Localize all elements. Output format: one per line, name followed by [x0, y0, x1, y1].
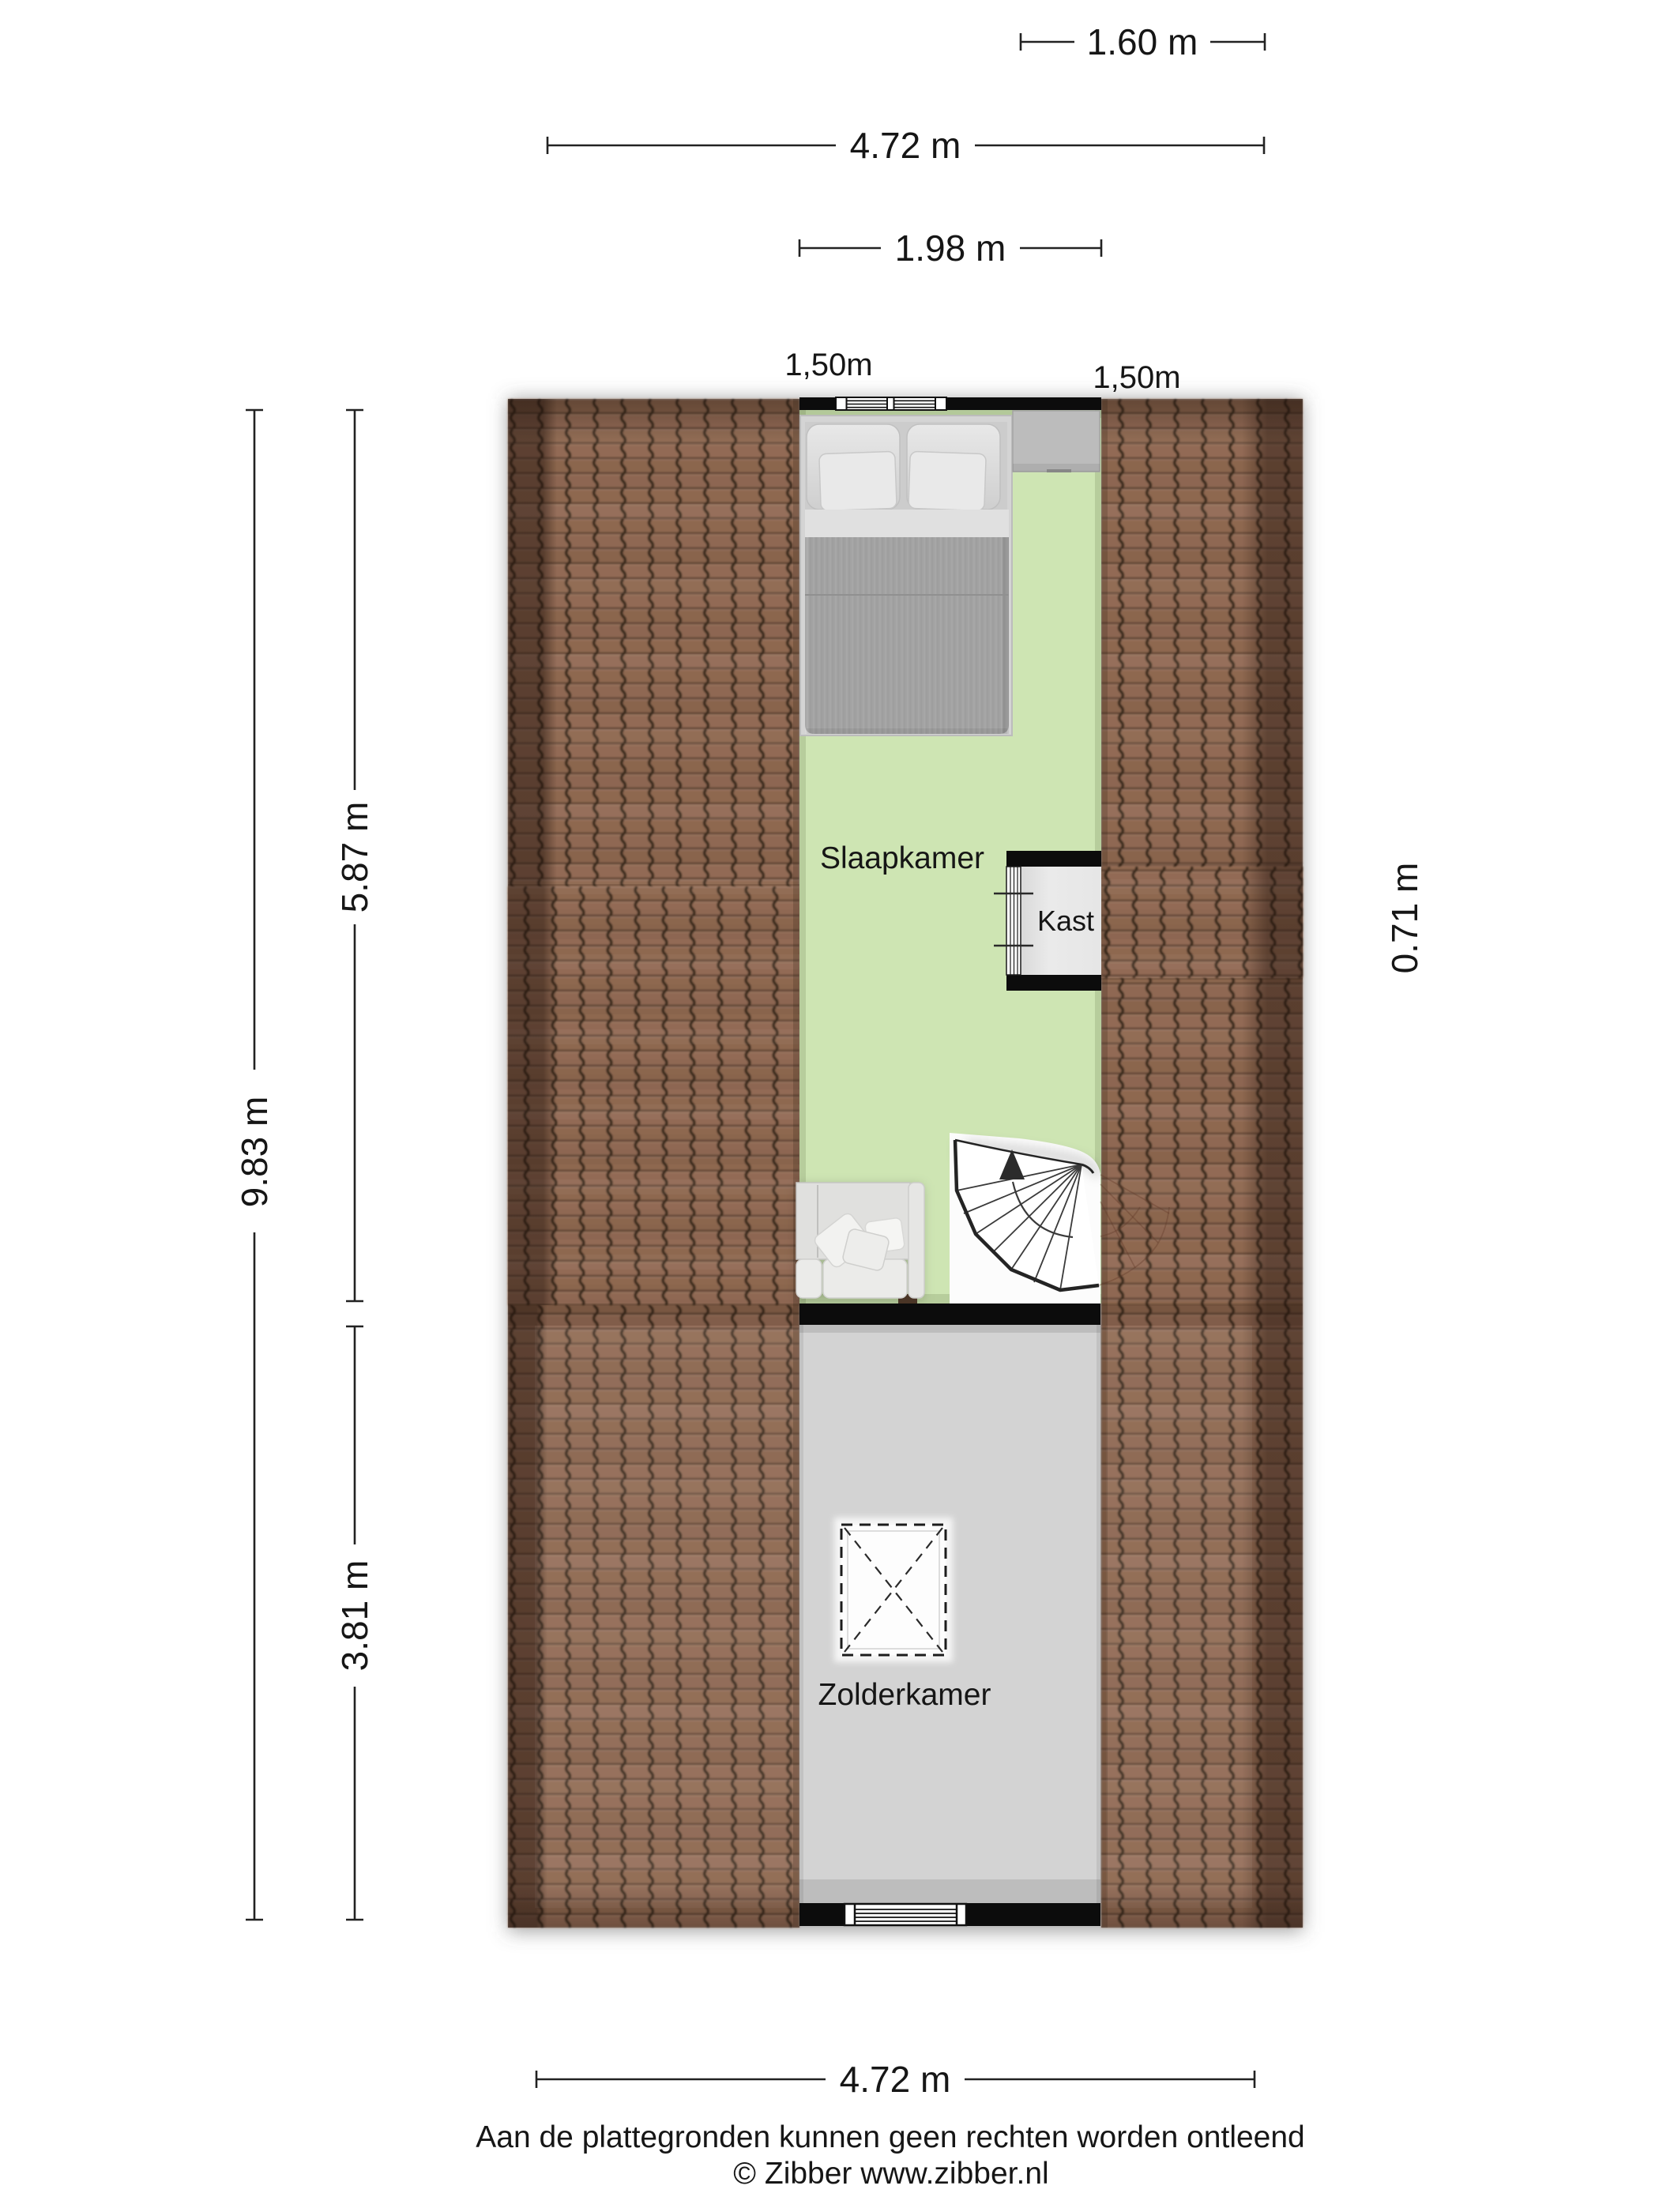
svg-text:Kast: Kast: [1037, 905, 1094, 937]
svg-text:0.71 m: 0.71 m: [1384, 863, 1425, 974]
svg-text:9.83 m: 9.83 m: [234, 1097, 275, 1208]
svg-text:© Zibber www.zibber.nl: © Zibber www.zibber.nl: [733, 2157, 1048, 2191]
svg-text:1.60 m: 1.60 m: [1087, 21, 1198, 62]
svg-text:4.72 m: 4.72 m: [850, 125, 961, 166]
svg-text:1.98 m: 1.98 m: [895, 228, 1006, 269]
svg-text:Zolderkamer: Zolderkamer: [818, 1678, 991, 1712]
svg-text:1,50m: 1,50m: [784, 348, 872, 382]
svg-text:1,50m: 1,50m: [1093, 360, 1180, 395]
svg-text:3.81 m: 3.81 m: [334, 1560, 375, 1672]
svg-text:4.72 m: 4.72 m: [840, 2059, 951, 2100]
svg-text:5.87 m: 5.87 m: [334, 802, 375, 913]
svg-text:Slaapkamer: Slaapkamer: [820, 841, 984, 875]
svg-text:Aan de plattegronden kunnen ge: Aan de plattegronden kunnen geen rechten…: [476, 2120, 1305, 2154]
